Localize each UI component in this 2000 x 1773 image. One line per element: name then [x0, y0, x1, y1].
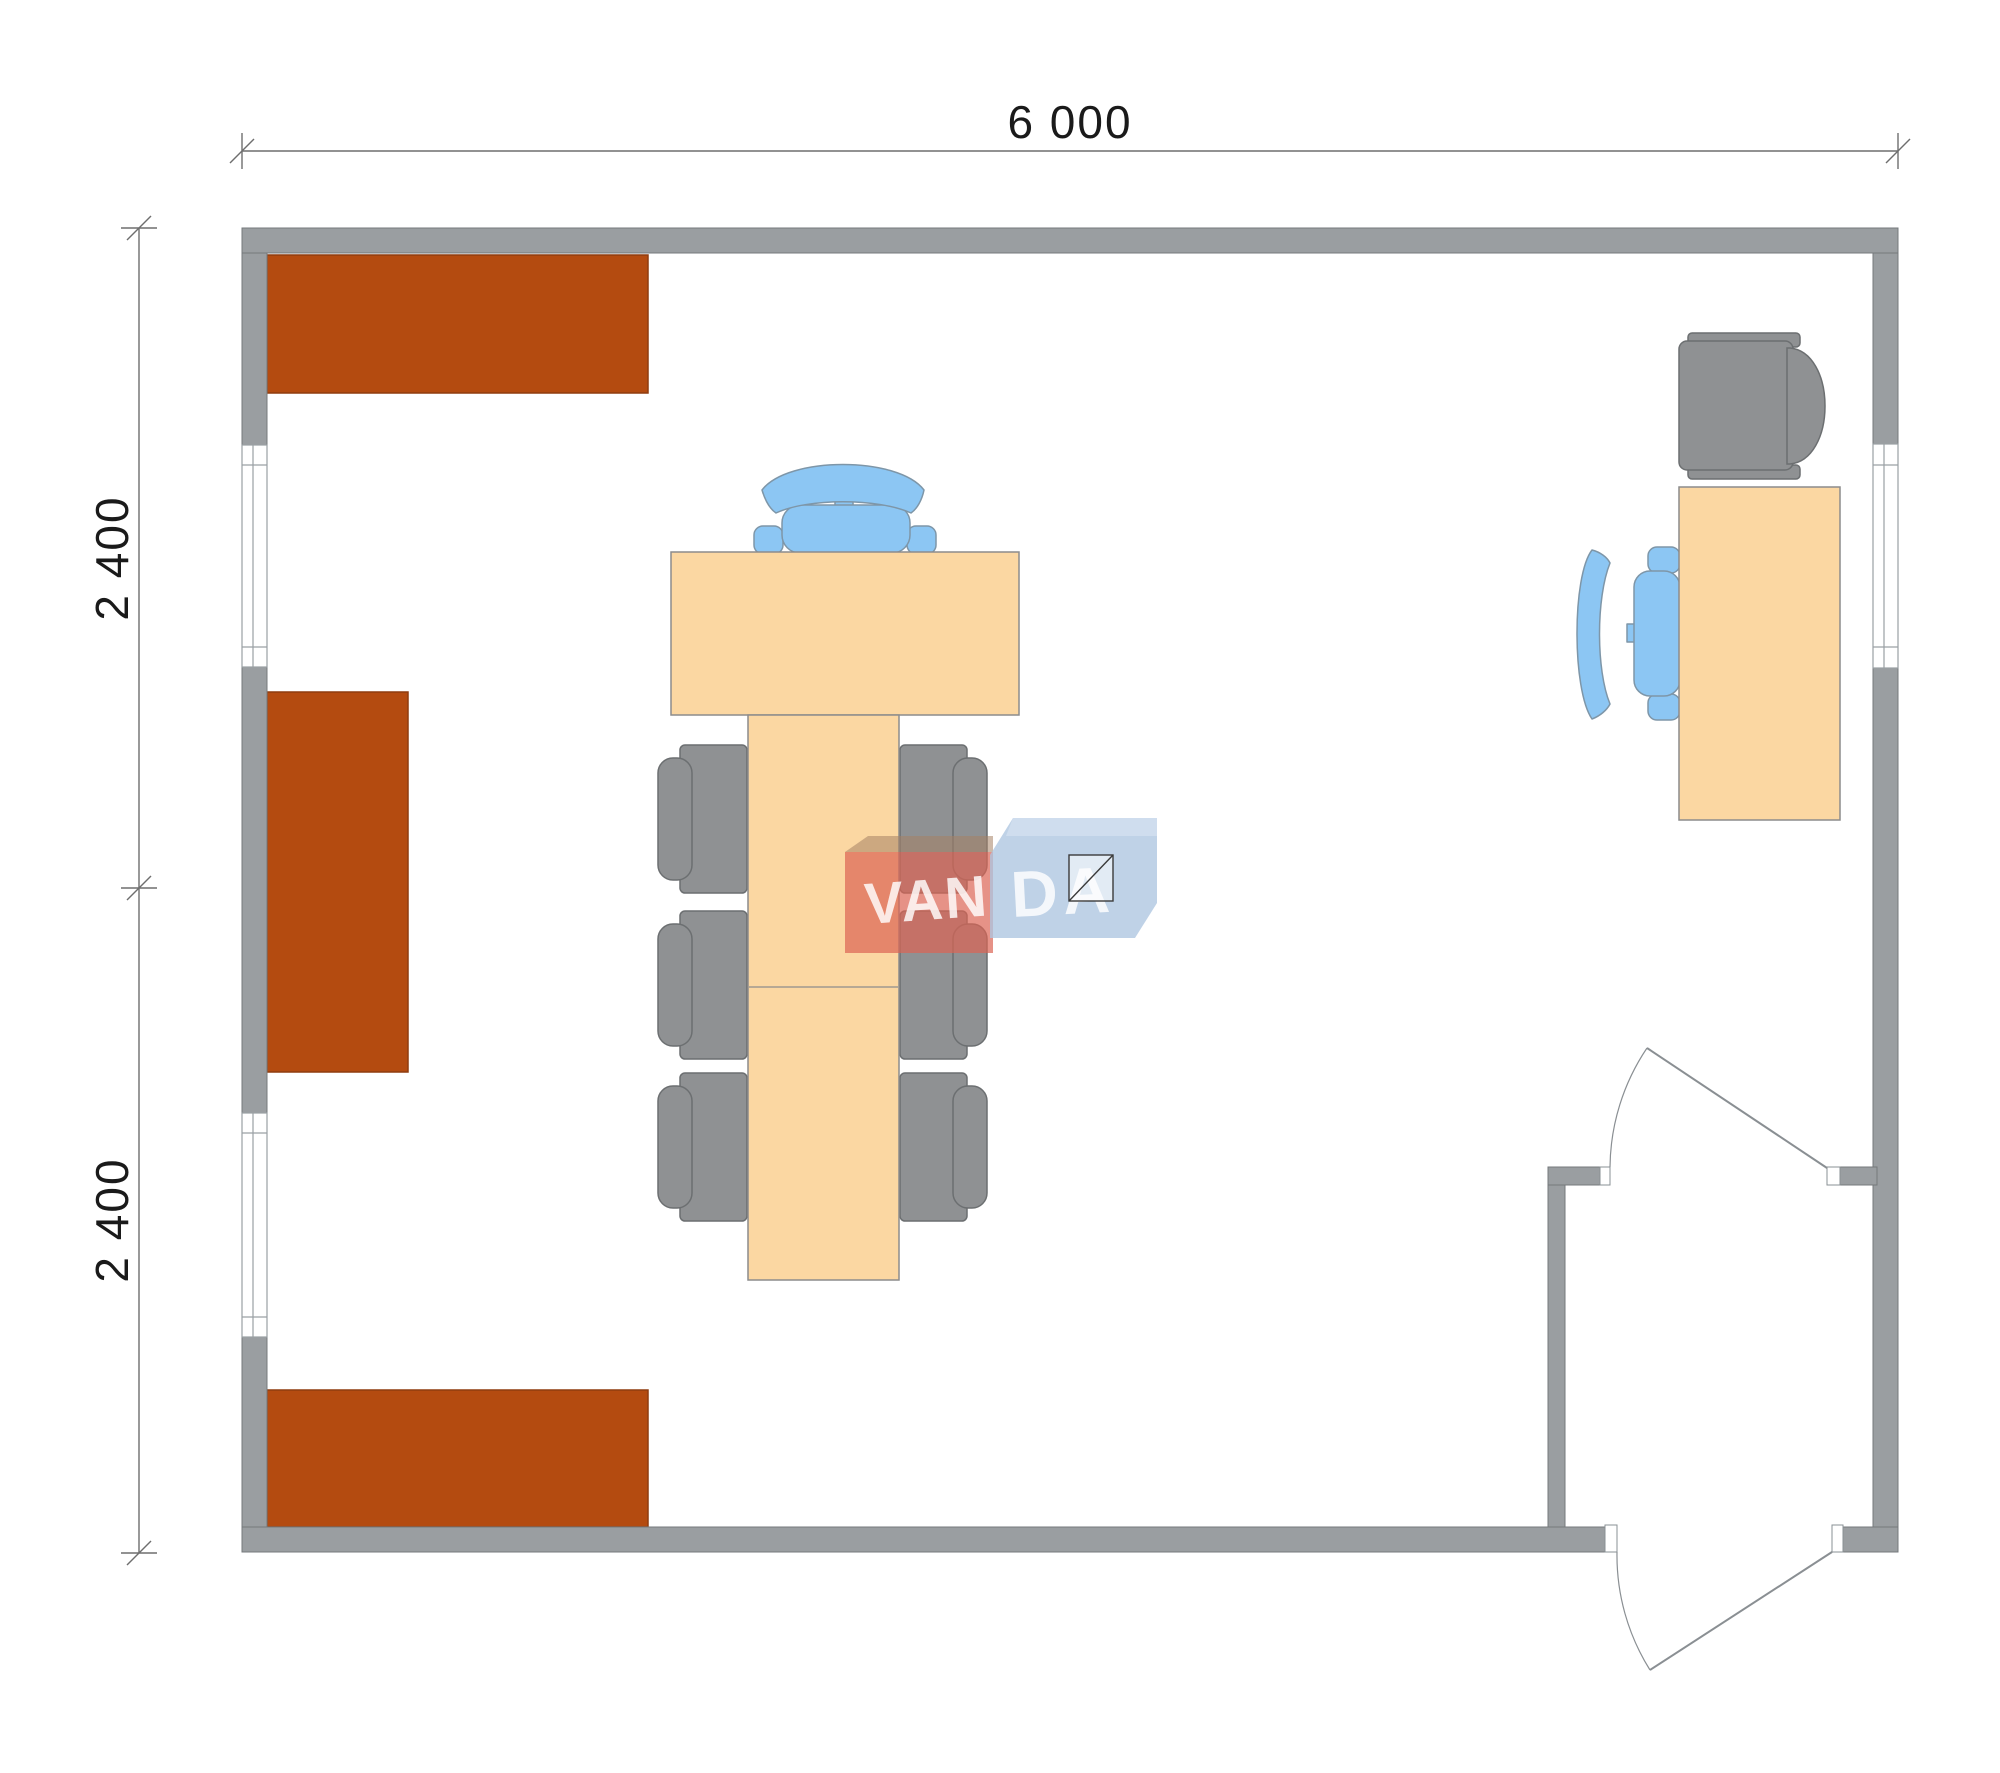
cabinet-middle-left [267, 692, 408, 1072]
chair-seat [1634, 571, 1680, 696]
doors [1610, 1048, 1832, 1670]
door-exterior [1617, 1552, 1832, 1670]
chair-back [658, 758, 692, 880]
partition-horizontal-left [1548, 1167, 1600, 1185]
partition-vertical [1548, 1185, 1565, 1527]
chair-armrest [754, 526, 783, 554]
vanda-watermark: VAN DA [845, 818, 1157, 953]
door-jamb [1600, 1167, 1610, 1185]
door-jamb [1832, 1525, 1843, 1552]
dimension-label-height-upper: 2 400 [86, 495, 138, 620]
meeting-chair-right-3 [900, 1073, 987, 1221]
chair-armrest [1648, 547, 1680, 573]
wall-left-segment [242, 667, 267, 1113]
window-left-lower [242, 1113, 267, 1337]
chair-back [1787, 348, 1825, 464]
wall-right-segment [1873, 253, 1898, 444]
wall-top [242, 228, 1898, 253]
desk [1679, 487, 1840, 820]
watermark-text-van: VAN [862, 863, 990, 937]
wall-bottom-right-segment [1843, 1527, 1898, 1552]
partition-walls [1548, 1167, 1877, 1527]
meeting-chair-left-3 [658, 1073, 747, 1221]
door-jamb [1605, 1525, 1617, 1552]
meeting-chair-left-1 [658, 745, 747, 893]
cabinet-bottom-left [267, 1390, 648, 1527]
chair-seat [1679, 341, 1793, 470]
wall-left-segment [242, 253, 267, 445]
chair-back [658, 1086, 692, 1208]
wall-bottom-left-segment [242, 1527, 1605, 1552]
window-frame [242, 1113, 267, 1337]
watermark-red-top-face [845, 836, 993, 852]
door-swing-arc [1610, 1048, 1647, 1167]
cabinet-top-left [267, 255, 648, 393]
door-swing-arc [1617, 1552, 1650, 1670]
door-interior [1610, 1048, 1827, 1168]
desk-chair-gray [1679, 333, 1825, 479]
chair-seat [782, 505, 910, 553]
desk-chair-blue [1577, 547, 1680, 720]
door-jamb [1827, 1167, 1840, 1185]
door-leaf [1650, 1552, 1832, 1670]
watermark-logo-square [1069, 855, 1113, 901]
partition-horizontal-right [1840, 1167, 1877, 1185]
window-frame [1873, 444, 1898, 668]
meeting-chair-left-2 [658, 911, 747, 1059]
wall-right-segment [1873, 668, 1898, 1527]
meeting-table-body [748, 715, 899, 1280]
watermark-blue-top-face [1006, 818, 1157, 836]
floor-plan-drawing: 6 000 2 400 2 400 [0, 0, 2000, 1773]
door-jambs [1600, 1167, 1843, 1552]
door-leaf [1647, 1048, 1827, 1168]
dimension-label-height-lower: 2 400 [86, 1157, 138, 1282]
meeting-table-head [671, 552, 1019, 715]
wall-left-segment [242, 1337, 267, 1527]
window-left-upper [242, 445, 267, 667]
window-frame [242, 445, 267, 667]
chair-armrest [907, 526, 936, 554]
chair-back [1577, 550, 1610, 719]
cabinets [267, 255, 648, 1527]
chair-armrest [1648, 694, 1680, 720]
window-right [1873, 444, 1898, 668]
chair-back [658, 924, 692, 1046]
floor-plan-canvas: 6 000 2 400 2 400 [0, 0, 2000, 1773]
dimension-label-width: 6 000 [1007, 96, 1132, 148]
chair-back [953, 1086, 987, 1208]
meeting-chair-blue [754, 465, 936, 555]
